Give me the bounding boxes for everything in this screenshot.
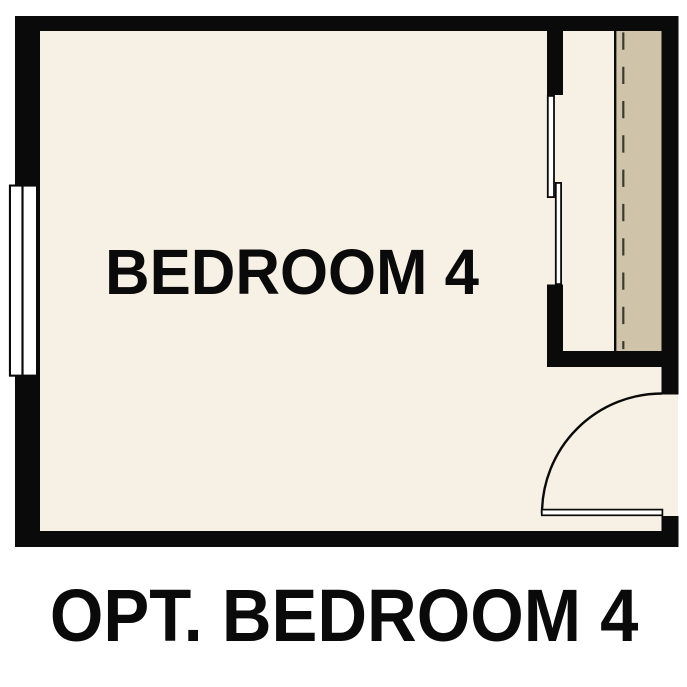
- svg-text:OPT. BEDROOM 4: OPT. BEDROOM 4: [50, 574, 639, 657]
- svg-text:BEDROOM 4: BEDROOM 4: [105, 236, 479, 308]
